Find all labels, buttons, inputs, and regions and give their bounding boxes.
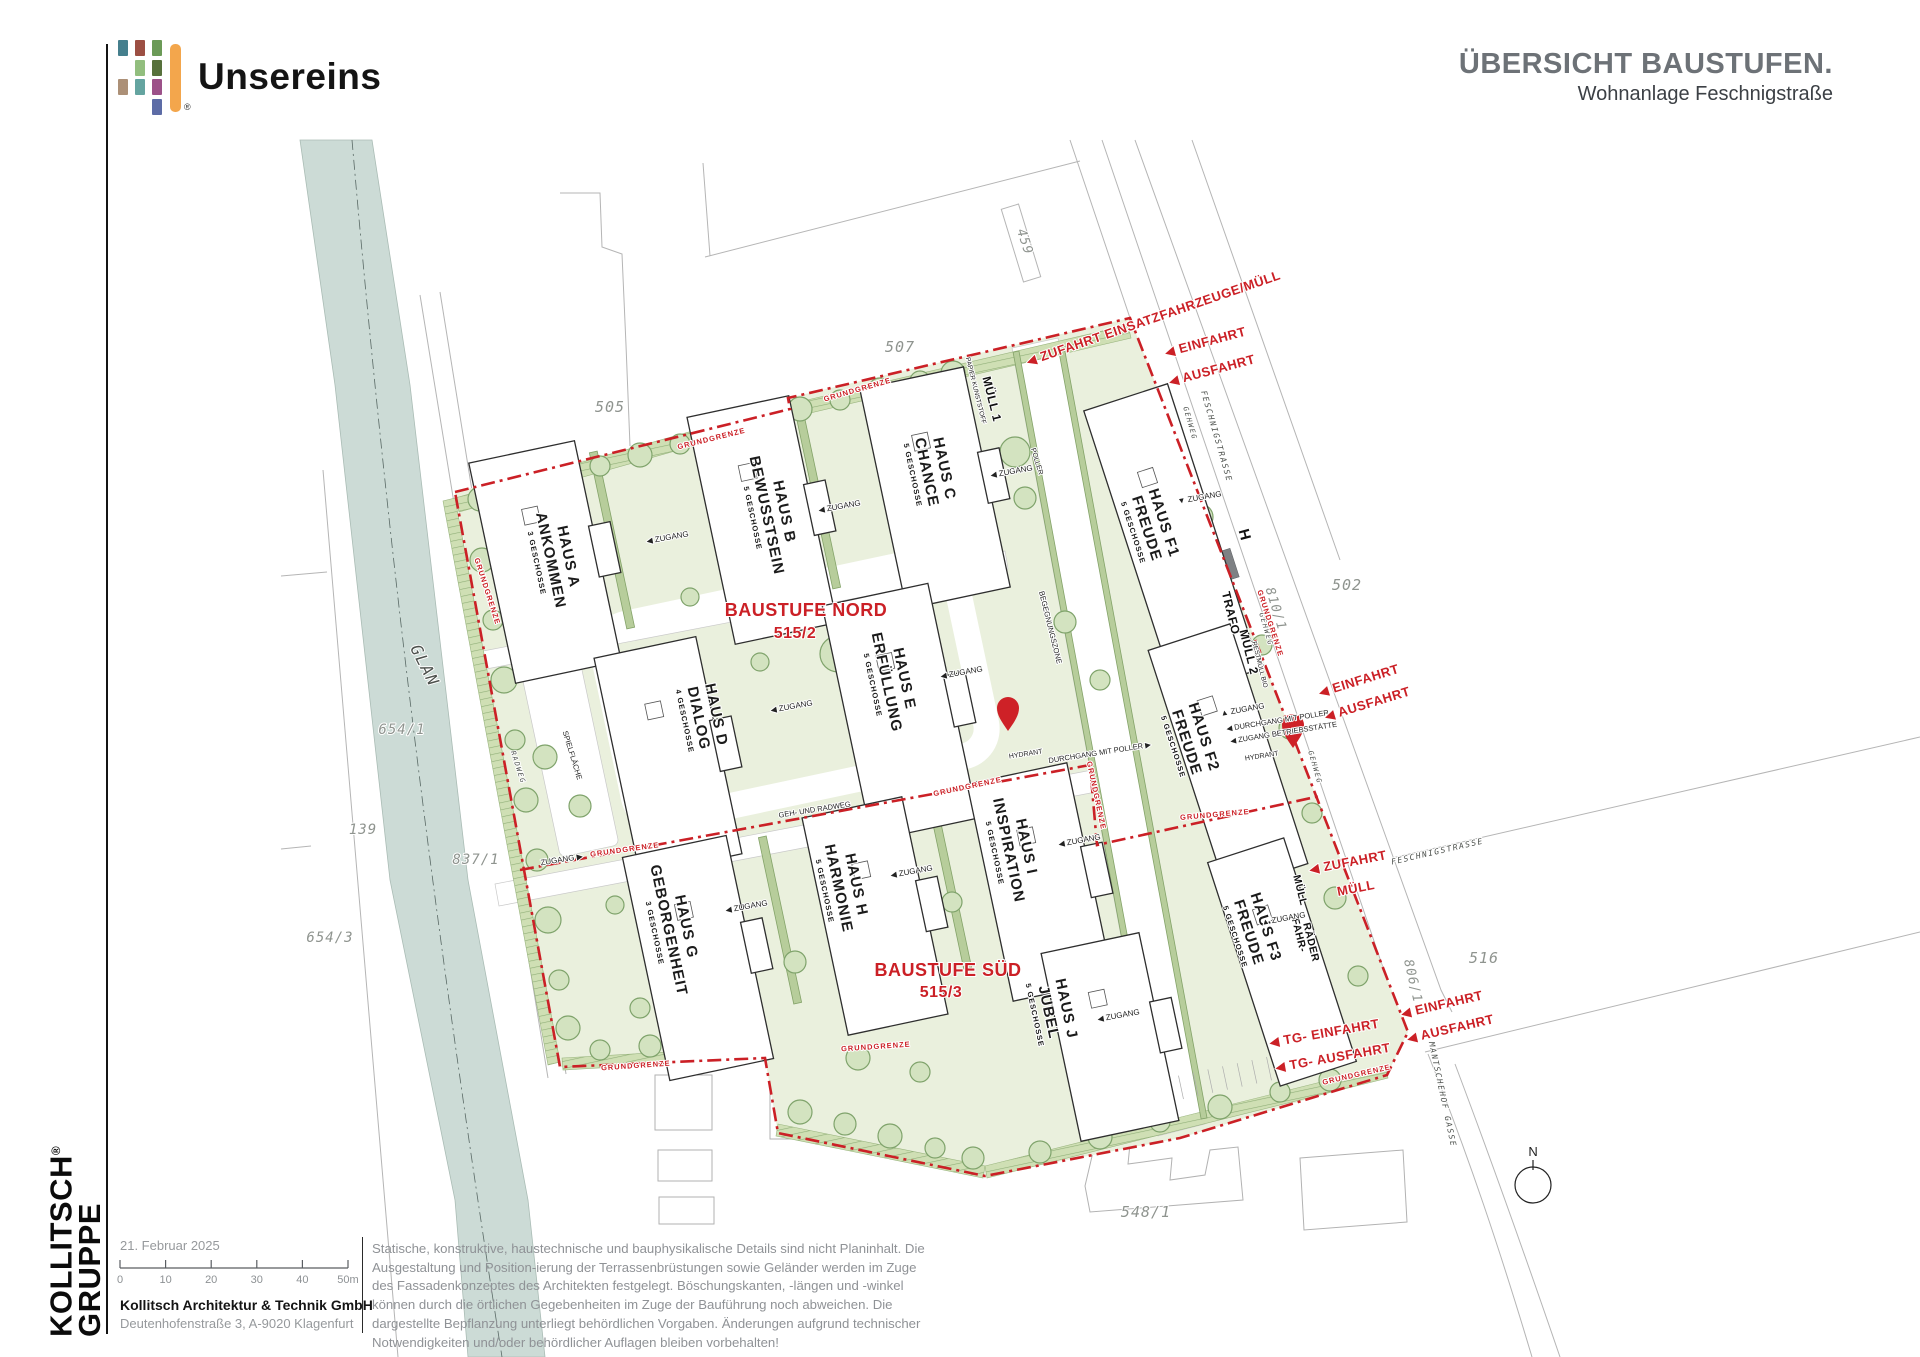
- tree-icon: [942, 892, 962, 912]
- tree-icon: [1090, 670, 1110, 690]
- tree-icon: [751, 653, 769, 671]
- tree-icon: [630, 998, 650, 1018]
- tree-icon: [925, 1138, 945, 1158]
- plan-label: 654/1: [378, 722, 425, 738]
- tree-icon: [639, 1035, 661, 1057]
- plan-label: 654/3: [306, 930, 353, 946]
- disclaimer-text: Statische, konstruktive, haustechnische …: [372, 1240, 940, 1352]
- plan-label: N: [1528, 1144, 1537, 1159]
- tree-icon: [681, 588, 699, 606]
- scale-tick-40: 40: [296, 1274, 308, 1286]
- kollitsch-gruppe-logo: KOLLITSCH® GRUPPE: [42, 1146, 104, 1337]
- tree-icon: [1014, 487, 1036, 509]
- tree-icon: [1029, 1141, 1051, 1163]
- kollitsch-registered-mark: ®: [49, 1146, 63, 1155]
- tree-icon: [505, 730, 525, 750]
- plan-label: 548/1: [1121, 1203, 1171, 1221]
- tree-icon: [1208, 1095, 1232, 1119]
- plan-label: H: [1235, 527, 1254, 542]
- scale-tick-30: 30: [251, 1274, 263, 1286]
- tree-icon: [784, 951, 806, 973]
- plan-label: ◀ EINFAHRT: [1163, 324, 1248, 360]
- tree-icon: [1054, 611, 1076, 633]
- tree-icon: [1348, 966, 1368, 986]
- plan-label: 515/3: [920, 984, 963, 1001]
- plan-label: 806/1: [1400, 958, 1425, 1004]
- plan-label: MANTSCHEHOF GASSE: [1427, 1040, 1458, 1148]
- gruppe-word: GRUPPE: [75, 1146, 104, 1337]
- scale-bar: 0 10 20 30 40 50m: [116, 1254, 366, 1288]
- tree-icon: [590, 1040, 610, 1060]
- plan-label: 459: [1013, 227, 1035, 257]
- tree-icon: [535, 907, 561, 933]
- site-plan-sheet: ® Unsereins ÜBERSICHT BAUSTUFEN. Wohnanl…: [0, 0, 1920, 1357]
- plan-label: 139: [349, 822, 377, 838]
- plan-label: 837/1: [452, 852, 499, 868]
- tree-icon: [834, 1113, 856, 1135]
- plan-label: FESCHNIGSTRASSE: [1199, 390, 1234, 484]
- tree-icon: [556, 1016, 580, 1040]
- plan-label: 515/2: [774, 625, 817, 642]
- plan-label: BAUSTUFE SÜD: [874, 960, 1021, 980]
- plan-label: 505: [595, 398, 625, 416]
- architect-company: Kollitsch Architektur & Technik GmbH: [120, 1297, 373, 1313]
- tree-icon: [549, 970, 569, 990]
- architect-address: Deutenhofenstraße 3, A-9020 Klagenfurt: [120, 1316, 353, 1331]
- scale-tick-0: 0: [117, 1274, 123, 1286]
- plan-date: 21. Februar 2025: [120, 1238, 220, 1253]
- tree-icon: [533, 745, 557, 769]
- tree-icon: [569, 795, 591, 817]
- tree-icon: [878, 1124, 902, 1148]
- scale-tick-50: 50m: [337, 1274, 358, 1286]
- tree-icon: [606, 896, 624, 914]
- tree-icon: [514, 788, 538, 812]
- plan-label: FESCHNIGSTRASSE: [1390, 837, 1484, 867]
- scale-tick-10: 10: [159, 1274, 171, 1286]
- tree-icon: [962, 1147, 984, 1169]
- north-arrow: [1515, 1160, 1551, 1203]
- tree-icon: [910, 1062, 930, 1082]
- plan-label: BAUSTUFE NORD: [725, 600, 888, 620]
- titleblock-divider: [362, 1237, 363, 1333]
- plan-label: 507: [885, 338, 915, 356]
- site-plan-drawing: HAUS AANKOMMEN3 GESCHOSSEHAUS BBEWUSSTSE…: [0, 0, 1920, 1357]
- plan-label: ◀ AUSFAHRT: [1167, 351, 1257, 388]
- plan-label: 502: [1332, 576, 1362, 594]
- scale-tick-20: 20: [205, 1274, 217, 1286]
- tree-icon: [788, 1100, 812, 1124]
- tree-icon: [1000, 437, 1030, 467]
- tree-icon: [1302, 803, 1322, 823]
- plan-label: 516: [1469, 949, 1499, 967]
